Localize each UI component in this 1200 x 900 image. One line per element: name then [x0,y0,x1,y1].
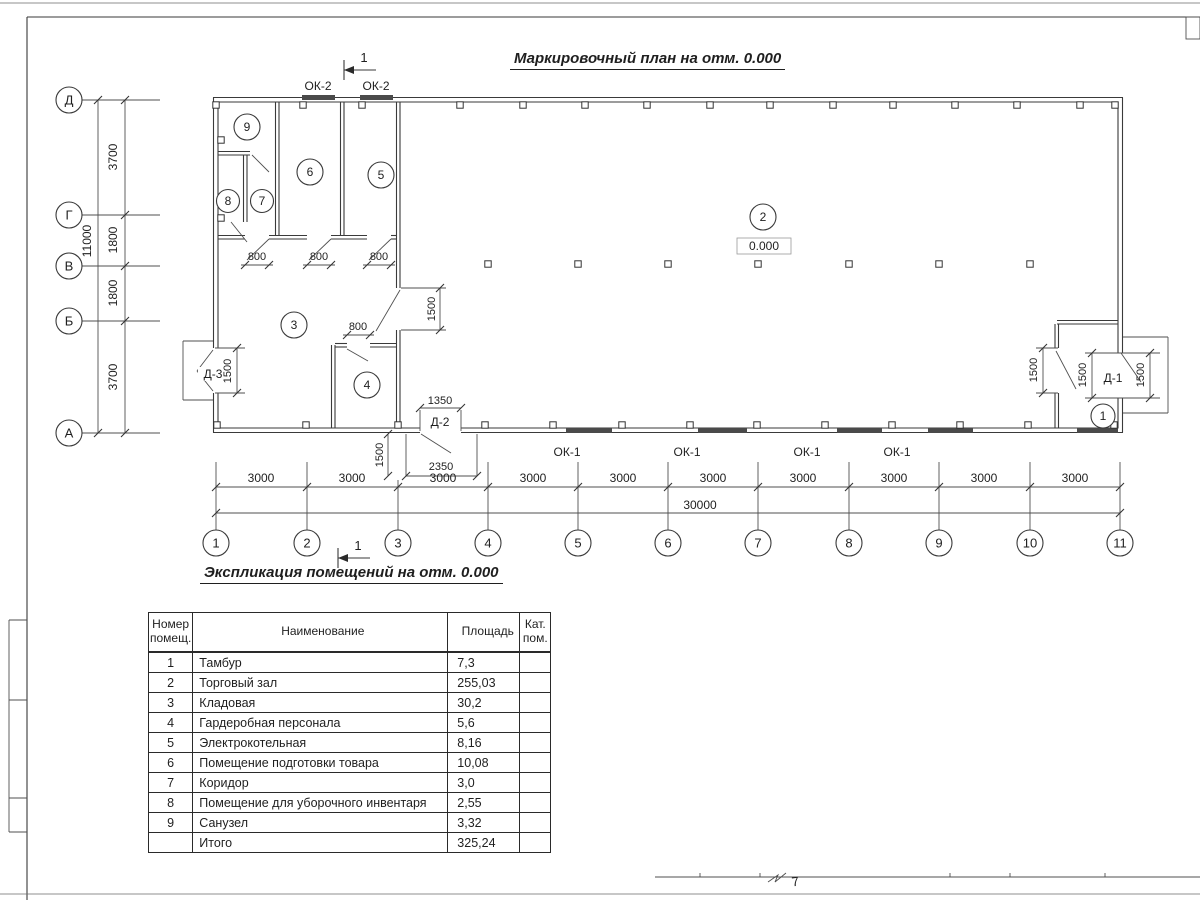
room-number: 2 [760,210,767,224]
axis-label: А [65,426,74,441]
room-bubbles: 9 6 5 8 7 2 3 4 1 0.000 [217,114,1116,428]
cell-area: 3,32 [448,813,520,833]
window-label-ok1: ОК-1 [884,445,911,459]
cell-area: 3,0 [448,773,520,793]
room-number: 4 [364,378,371,392]
cell-area: 7,3 [448,652,520,673]
room-number: 6 [307,165,314,179]
dim-label-total-width: 30000 [683,498,717,512]
cell-name: Электрокотельная [193,733,448,753]
axis-label: 5 [574,536,581,551]
column-axis-bubbles: 1 2 3 4 5 6 7 8 9 10 11 [203,530,1133,556]
left-dimension-chain: 3700 1800 1800 3700 11000 [80,96,160,437]
dim-label: 1500 [374,443,386,467]
dim-label-total-height: 11000 [80,224,94,257]
dim-label: 800 [349,321,367,333]
cell-num: 5 [149,733,193,753]
cell-num: 2 [149,673,193,693]
door-label-d2: Д-2 [431,415,450,429]
dim-label: 3000 [1062,471,1089,485]
axis-label: 11 [1113,536,1127,551]
cell-cat [520,753,551,773]
dim-label: 3000 [971,471,998,485]
cell-area: 5,6 [448,713,520,733]
cell-name: Тамбур [193,652,448,673]
cell-name: Помещение для уборочного инвентаря [193,793,448,813]
cell-cat [520,813,551,833]
header-category: Кат. пом. [520,613,551,653]
dim-label: 800 [248,251,266,263]
axis-label: В [65,259,74,274]
dim-label: 1500 [426,297,438,321]
cell-name: Итого [193,833,448,853]
windows: ОК-2 ОК-2 ОК-1 ОК-1 ОК-1 ОК-1 [302,79,1118,459]
cell-num: 9 [149,813,193,833]
cell-cat [520,833,551,853]
window-label-ok2: ОК-2 [363,79,390,93]
table-row: 9 Санузел 3,32 [149,813,551,833]
dim-label: 3000 [610,471,637,485]
column-marks [213,102,1118,428]
explication-table: Номер помещ. Наименование Площадь Кат. п… [148,612,551,853]
header-room-number: Номер помещ. [149,613,193,653]
cell-num: 7 [149,773,193,793]
axis-label: 6 [664,536,671,551]
cell-cat [520,652,551,673]
cell-cat [520,733,551,753]
cell-num: 8 [149,793,193,813]
door-label-d3: Д-3 [204,367,223,381]
cell-name: Кладовая [193,693,448,713]
axis-label: 1 [212,536,219,551]
dim-label: 3000 [248,471,275,485]
table-row-total: Итого 325,24 [149,833,551,853]
dim-label: 3000 [430,471,457,485]
axis-label: Д [65,93,74,108]
bottom-dimension-chain: 3000 3000 3000 3000 3000 3000 3000 3000 … [212,462,1124,530]
dim-label: 1800 [106,279,120,306]
table-row: 5 Электрокотельная 8,16 [149,733,551,753]
cell-cat [520,713,551,733]
corner-note: 7 [791,874,800,890]
dim-label: 3700 [106,363,120,390]
cell-cat [520,693,551,713]
dim-label: 1350 [428,395,452,407]
table-row: 6 Помещение подготовки товара 10,08 [149,753,551,773]
axis-label: 3 [394,536,401,551]
plan-title: Маркировочный план на отм. 0.000 [510,50,785,70]
axis-label: 10 [1023,536,1037,551]
dim-label: 3000 [520,471,547,485]
dim-label: 800 [370,251,388,263]
cell-cat [520,773,551,793]
cell-name: Помещение подготовки товара [193,753,448,773]
drawing-sheet: 7 ОК-2 ОК-2 ОК-1 ОК-1 ОК-1 ОК-1 [0,0,1200,900]
table-row: 7 Коридор 3,0 [149,773,551,793]
cell-area: 10,08 [448,753,520,773]
dim-label: 1800 [106,226,120,253]
explication-title: Экспликация помещений на отм. 0.000 [200,564,503,584]
room-number: 7 [259,194,266,208]
table-row: 3 Кладовая 30,2 [149,693,551,713]
cell-area: 255,03 [448,673,520,693]
axis-label: Г [65,208,72,223]
table-row: 1 Тамбур 7,3 [149,652,551,673]
dim-label: 1500 [222,359,234,383]
axis-label: 7 [754,536,761,551]
dim-label: 3700 [106,143,120,170]
header-area: Площадь [448,613,520,653]
room-number: 5 [378,168,385,182]
dim-label: 3000 [790,471,817,485]
cell-name: Гардеробная персонала [193,713,448,733]
axis-label: Б [65,314,74,329]
window-label-ok1: ОК-1 [794,445,821,459]
dim-label: 3000 [700,471,727,485]
cell-area: 30,2 [448,693,520,713]
cell-num: 4 [149,713,193,733]
axis-label: 9 [935,536,942,551]
cell-num: 1 [149,652,193,673]
row-axis-bubbles: Д Г В Б А [56,87,82,446]
window-label-ok2: ОК-2 [305,79,332,93]
cell-name: Санузел [193,813,448,833]
axis-label: 2 [303,536,310,551]
table-row: 4 Гардеробная персонала 5,6 [149,713,551,733]
room-number: 3 [291,318,298,332]
dim-label: 3000 [881,471,908,485]
room-number: 8 [225,194,232,208]
elevation-mark: 0.000 [749,239,779,253]
axis-label: 4 [484,536,491,551]
cell-cat [520,793,551,813]
door-label-d1: Д-1 [1104,371,1123,385]
cell-name: Коридор [193,773,448,793]
dim-label: 800 [310,251,328,263]
section-mark-label: 1 [360,50,367,65]
window-label-ok1: ОК-1 [674,445,701,459]
table-row: 8 Помещение для уборочного инвентаря 2,5… [149,793,551,813]
cell-cat [520,673,551,693]
cell-num: 3 [149,693,193,713]
header-name: Наименование [193,613,448,653]
cell-area: 8,16 [448,733,520,753]
cell-num [149,833,193,853]
axis-label: 8 [845,536,852,551]
dim-label: 1500 [1077,363,1089,387]
section-mark-label: 1 [354,538,361,553]
cell-num: 6 [149,753,193,773]
table-row: 2 Торговый зал 255,03 [149,673,551,693]
table-header-row: Номер помещ. Наименование Площадь Кат. п… [149,613,551,653]
room-number: 9 [244,120,251,134]
dim-label: 1500 [1135,363,1147,387]
cell-area: 325,24 [448,833,520,853]
cell-name: Торговый зал [193,673,448,693]
dim-label: 1500 [1028,358,1040,382]
room-number: 1 [1100,409,1107,423]
dim-label: 3000 [339,471,366,485]
cell-area: 2,55 [448,793,520,813]
window-label-ok1: ОК-1 [554,445,581,459]
